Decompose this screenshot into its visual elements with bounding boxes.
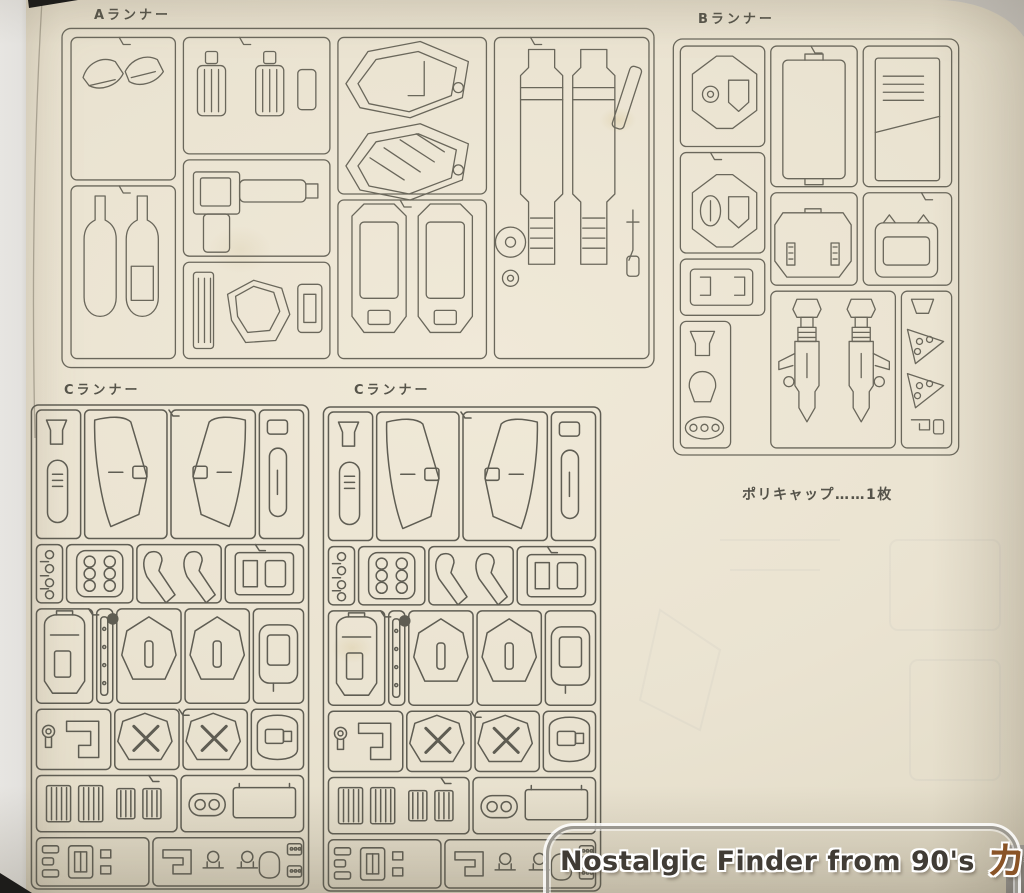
runner-a-diagram: [59, 25, 657, 371]
runner-a-artwork: [62, 28, 654, 367]
runner-b-diagram: [670, 36, 962, 458]
runner-c-left-label: Cランナー: [64, 379, 141, 398]
runner-b-artwork: [673, 39, 958, 455]
watermark-text-en: Nostalgic Finder from 90's: [560, 846, 975, 877]
runner-c-right-label: Cランナー: [354, 379, 431, 398]
runner-c-right-diagram: [320, 404, 604, 893]
watermark-logo: カタ マタ バー: [987, 842, 1024, 880]
runner-b-label: Bランナー: [698, 8, 775, 27]
photo-of-instruction-sheet: Aランナー: [0, 0, 1024, 893]
watermark-logo-segment: カタ: [986, 842, 1024, 880]
runner-a-label: Aランナー: [94, 4, 171, 23]
page-crease-line: [0, 0, 60, 440]
watermark: Nostalgic Finder from 90's カタ マタ バー: [560, 834, 1024, 888]
print-through-ghost: [630, 530, 1020, 830]
polycap-note: ポリキャップ……1枚: [742, 484, 893, 504]
runner-c-left-diagram: [28, 402, 312, 892]
